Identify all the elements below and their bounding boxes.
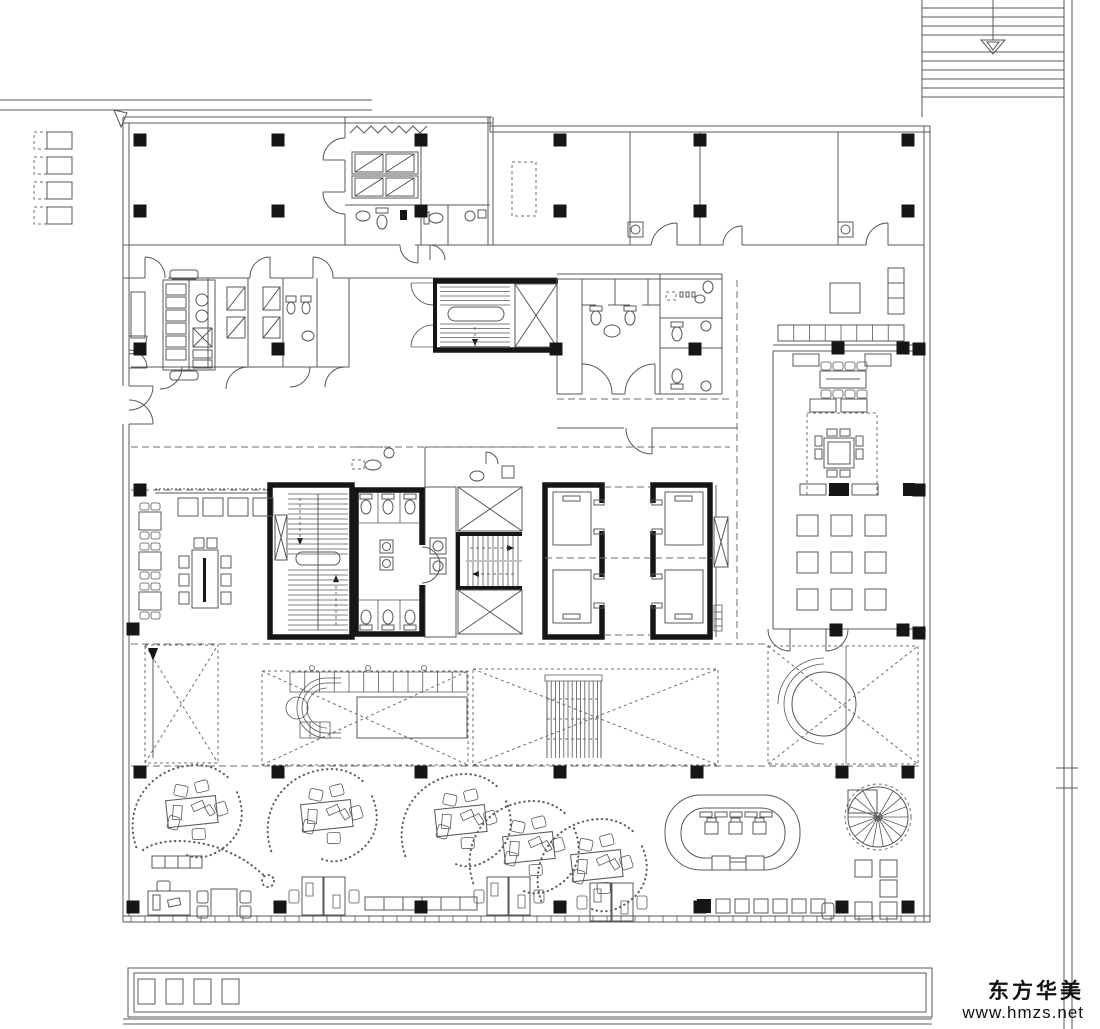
- stool: [773, 899, 787, 913]
- structural-column: [134, 134, 147, 147]
- square-table: [797, 552, 818, 573]
- parking-stall: [34, 132, 47, 149]
- elevator-bank: [545, 485, 728, 637]
- structural-column: [127, 623, 140, 636]
- structural-column: [689, 343, 702, 356]
- chair: [327, 832, 340, 843]
- chair: [463, 788, 478, 802]
- desk: [435, 805, 488, 837]
- chair: [151, 543, 160, 550]
- chair: [151, 532, 160, 539]
- stool: [811, 899, 825, 913]
- chair: [151, 572, 160, 579]
- stair-core-north: [411, 281, 558, 350]
- small-table: [880, 860, 897, 877]
- chair: [510, 820, 525, 833]
- structural-column: [272, 343, 285, 356]
- chair: [173, 784, 188, 797]
- structural-column: [550, 343, 563, 356]
- structural-column: [554, 205, 567, 218]
- chair: [194, 779, 209, 793]
- structural-column: [415, 205, 428, 218]
- chair: [289, 890, 299, 903]
- chair: [192, 828, 205, 839]
- chair: [857, 390, 867, 398]
- chair: [436, 824, 450, 839]
- outer-walls: [123, 117, 930, 922]
- chair: [599, 833, 614, 847]
- chair: [329, 783, 344, 797]
- parking-stall: [34, 182, 47, 199]
- structural-column: [134, 484, 147, 497]
- cafe-table: [139, 512, 161, 530]
- structural-column: [897, 624, 910, 637]
- structural-column: [902, 766, 915, 779]
- screen-divider: [396, 770, 505, 856]
- structural-column: [415, 766, 428, 779]
- structural-column: [415, 134, 428, 147]
- small-table: [855, 860, 872, 877]
- chair: [845, 362, 855, 370]
- door-swings: [129, 138, 888, 651]
- structural-column: [902, 205, 915, 218]
- stool: [735, 899, 749, 913]
- desk-pair: [474, 877, 544, 915]
- structural-column: [913, 343, 926, 356]
- stool: [697, 899, 711, 913]
- workstation-cluster: [464, 796, 584, 900]
- structural-column: [415, 901, 428, 914]
- structural-column: [832, 342, 845, 355]
- chair: [833, 362, 843, 370]
- cafe-table: [139, 592, 161, 610]
- structural-column: [694, 134, 707, 147]
- louver-zigzag: [350, 126, 427, 133]
- structural-column: [902, 901, 915, 914]
- workstation-cluster: [262, 764, 382, 868]
- desk: [301, 800, 354, 832]
- stool: [792, 899, 806, 913]
- structural-column: [913, 627, 926, 640]
- watermark: 东方华美 www.hmzs.net: [962, 981, 1084, 1023]
- chair: [167, 815, 181, 830]
- chair: [302, 819, 316, 834]
- watermark-company: 东方华美: [962, 981, 1084, 1003]
- structural-column: [554, 901, 567, 914]
- elevator-car: [553, 492, 591, 545]
- shaft-stack: [458, 487, 522, 634]
- square-table: [865, 515, 886, 536]
- chair: [140, 503, 149, 510]
- screen-divider: [143, 841, 266, 877]
- elevator-car: [665, 570, 703, 623]
- parking-stall: [34, 207, 47, 224]
- screen-divider: [532, 815, 641, 901]
- parking-stall: [47, 132, 72, 149]
- screen-divider: [464, 797, 573, 883]
- chair: [637, 896, 647, 909]
- table: [178, 498, 198, 516]
- atrium-band: [145, 645, 918, 765]
- structural-column: [127, 901, 140, 914]
- elevator-car: [665, 492, 703, 545]
- watermark-website: www.hmzs.net: [962, 1003, 1084, 1023]
- structural-column: [274, 901, 287, 914]
- chair: [845, 390, 855, 398]
- circular-void: [792, 672, 856, 736]
- chair: [151, 503, 160, 510]
- structural-column: [691, 766, 704, 779]
- chair: [140, 532, 149, 539]
- structural-column: [836, 901, 849, 914]
- chair: [504, 851, 518, 866]
- chair: [151, 612, 160, 619]
- table: [211, 889, 237, 916]
- spiral-stair: [822, 784, 911, 919]
- square-table: [831, 589, 852, 610]
- square-table: [865, 552, 886, 573]
- structural-column: [830, 624, 843, 637]
- east-meeting-room: [800, 399, 915, 496]
- chair: [531, 815, 546, 829]
- stool: [716, 899, 730, 913]
- grade-break-marker: [114, 110, 127, 127]
- structural-column: [913, 484, 926, 497]
- workstation-cluster: [396, 769, 516, 873]
- chair: [833, 390, 843, 398]
- south-strip-building: [123, 968, 932, 1024]
- chair: [442, 793, 457, 806]
- structural-column: [554, 134, 567, 147]
- square-table: [831, 515, 852, 536]
- mid-vestibule-fixtures: [352, 448, 514, 481]
- parking-stall: [34, 157, 47, 174]
- structural-column: [554, 766, 567, 779]
- exterior-stair-top-right: [922, 0, 1078, 1029]
- chair: [578, 838, 593, 851]
- desk-pair: [577, 883, 647, 921]
- structural-column: [272, 205, 285, 218]
- chair: [151, 583, 160, 590]
- chair: [821, 362, 831, 370]
- chair: [140, 572, 149, 579]
- stool: [754, 899, 768, 913]
- generated-items: [34, 8, 1064, 922]
- chair: [140, 543, 149, 550]
- cafe-table: [139, 552, 161, 570]
- parking-stall: [47, 157, 72, 174]
- structural-column: [836, 766, 849, 779]
- chair: [140, 583, 149, 590]
- chair: [461, 837, 474, 848]
- desk-pair: [289, 877, 359, 915]
- desk: [571, 850, 624, 882]
- elevator-car: [553, 570, 591, 623]
- desk: [503, 832, 556, 864]
- square-table: [831, 552, 852, 573]
- structural-column: [897, 342, 910, 355]
- desk: [166, 796, 219, 828]
- table: [203, 498, 223, 516]
- structural-column: [272, 134, 285, 147]
- chair: [821, 390, 831, 398]
- stair-core-west: [270, 485, 352, 637]
- corridor-dashed-lines: [131, 280, 920, 766]
- chair: [140, 612, 149, 619]
- chair: [597, 882, 610, 893]
- structural-column: [134, 766, 147, 779]
- structural-column: [902, 134, 915, 147]
- square-table: [797, 589, 818, 610]
- table: [228, 498, 248, 516]
- parking-stall: [47, 182, 72, 199]
- floor-plan-drawing: [0, 0, 1100, 1029]
- square-table: [865, 589, 886, 610]
- sofa: [888, 268, 904, 314]
- structural-column: [272, 766, 285, 779]
- kitchen: [131, 270, 314, 380]
- oval-pod: [665, 795, 800, 870]
- structural-column: [694, 205, 707, 218]
- parking-stall: [47, 207, 72, 224]
- chair: [529, 864, 542, 875]
- toilet-core-central: [356, 490, 446, 634]
- small-table: [880, 880, 897, 897]
- floor-plan-canvas: 东方华美 www.hmzs.net: [0, 0, 1100, 1029]
- ottoman: [830, 283, 860, 313]
- chair: [572, 869, 586, 884]
- structural-column: [134, 343, 147, 356]
- square-table: [797, 515, 818, 536]
- chair: [308, 788, 323, 801]
- chair: [349, 890, 359, 903]
- interior-walls: [123, 117, 924, 637]
- wc-block: [557, 274, 722, 394]
- office-band-fixtures: [512, 162, 853, 237]
- chair: [577, 896, 587, 909]
- structural-column: [134, 205, 147, 218]
